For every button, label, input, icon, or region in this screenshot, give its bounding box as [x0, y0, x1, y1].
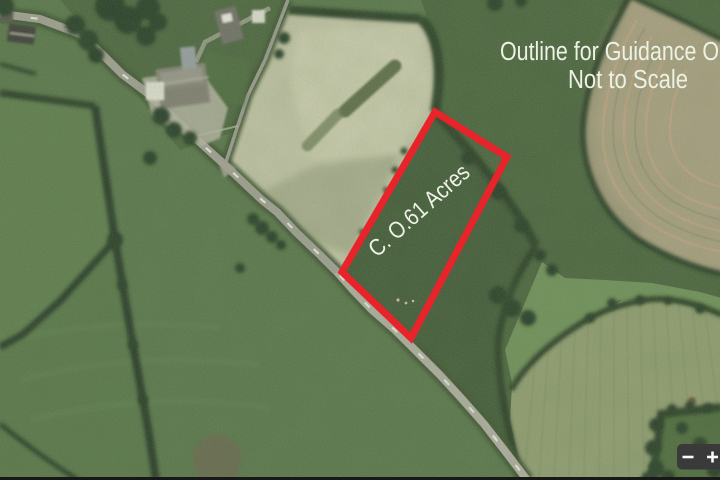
svg-text:Outline for Guidance O: Outline for Guidance O [500, 38, 719, 66]
svg-text:Not to Scale: Not to Scale [568, 66, 688, 94]
